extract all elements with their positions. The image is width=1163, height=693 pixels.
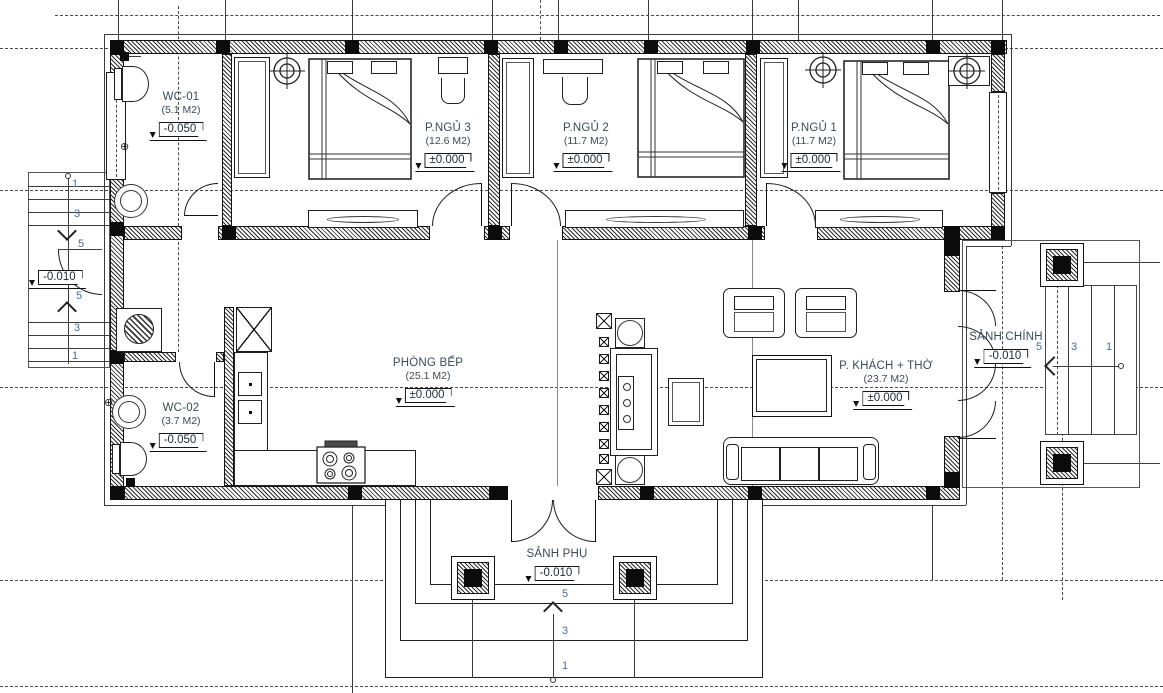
column <box>110 486 124 500</box>
room-area: (11.7 M2) <box>790 135 837 147</box>
room-name: SẢNH PHỤ <box>526 548 587 560</box>
wall-bedroom-south <box>562 226 765 240</box>
wall-partition <box>222 54 232 226</box>
wall-right-upper <box>991 54 1005 92</box>
column <box>991 226 1005 240</box>
line-end-marker <box>1118 363 1124 369</box>
door-swing-arc <box>179 362 214 397</box>
partition-block <box>596 313 612 329</box>
bed <box>308 58 412 180</box>
burner <box>623 415 631 423</box>
pillow <box>862 62 888 75</box>
toilet-bowl <box>122 66 149 102</box>
sink-basin <box>118 401 140 423</box>
column <box>991 40 1005 54</box>
room-label-wc2: WC-02 (3.7 M2) -0.050 <box>159 402 204 448</box>
column <box>748 486 762 500</box>
cabinet <box>238 372 262 396</box>
column <box>110 222 124 236</box>
level-marker: ±0.000 <box>424 153 471 168</box>
cabinet <box>238 400 262 424</box>
window-center-line <box>998 95 999 190</box>
sink-basin <box>120 190 142 212</box>
partition-block <box>599 422 609 432</box>
sofa-arm <box>726 444 739 480</box>
column <box>944 472 960 488</box>
column <box>944 240 960 256</box>
stair-step-number: 1 <box>1106 341 1112 353</box>
door-swing-arc <box>184 183 218 216</box>
line-end-marker <box>550 677 556 683</box>
valve-line <box>129 56 141 57</box>
room-label-bed1: P.NGỦ 1 (11.7 M2) ±0.000 <box>790 122 837 168</box>
chair <box>441 78 465 104</box>
room-area: (11.7 M2) <box>562 135 609 147</box>
stair-tread <box>28 335 110 336</box>
pillow <box>903 62 929 75</box>
stair-tread <box>28 322 110 323</box>
sofa-seat <box>819 447 858 481</box>
pillow <box>371 61 397 74</box>
column <box>746 40 760 54</box>
entry-arrow-stem <box>553 614 554 678</box>
table-burner-strip <box>618 376 634 430</box>
wall-partition <box>488 54 500 226</box>
coffee-table-inner <box>756 359 827 412</box>
grid-line-v <box>352 505 353 693</box>
level-marker: -0.010 <box>535 566 580 581</box>
armchair-seat <box>806 312 846 332</box>
partition-block <box>599 354 609 364</box>
armchair-back <box>806 296 846 310</box>
wardrobe-inner <box>506 62 530 174</box>
room-name: P.NGỦ 1 <box>790 122 837 134</box>
wall-bedroom-south <box>817 226 1005 240</box>
tv-icon <box>840 216 920 223</box>
stair-step-number: 1 <box>72 178 78 190</box>
stove <box>316 440 366 484</box>
entry-arrow-stem <box>1053 366 1119 367</box>
stair-step-number: 3 <box>562 625 568 637</box>
pillow <box>703 61 729 74</box>
t v-icon <box>606 216 706 223</box>
washing-machine-drum <box>124 314 154 344</box>
dining-chair-seat <box>617 457 643 483</box>
valve-icon <box>126 478 135 487</box>
partition-block <box>599 388 609 398</box>
room-area: (25.1 M2) <box>393 370 463 382</box>
wardrobe <box>234 57 270 178</box>
armchair <box>795 288 857 338</box>
sofa-arm <box>863 444 876 480</box>
cabinet-knob <box>249 383 252 386</box>
stair-step-number: 3 <box>74 208 80 220</box>
grid-line-h <box>55 15 1160 16</box>
axis-line-v <box>557 240 558 486</box>
column-leader <box>634 600 635 678</box>
ceiling-fan-icon <box>803 50 843 90</box>
partition-block <box>599 439 609 449</box>
porch-column-core <box>1053 256 1071 274</box>
wardrobe <box>502 58 534 178</box>
column <box>348 486 362 500</box>
porch-column-core <box>626 569 644 587</box>
side-table <box>668 378 704 426</box>
line-end-marker <box>65 173 71 179</box>
sofa <box>723 437 879 485</box>
stair-step-number: 5 <box>76 290 82 302</box>
fridge-space <box>236 307 272 352</box>
wall-wc2 <box>216 352 224 362</box>
level-marker: ±0.000 <box>862 391 909 406</box>
dining-chair <box>615 318 645 348</box>
stair-tread <box>28 199 110 200</box>
stair-step-number: 3 <box>74 322 80 334</box>
bed <box>843 60 950 180</box>
column <box>554 40 568 54</box>
stair-step-number: 1 <box>72 350 78 362</box>
stair-step-number: 1 <box>562 660 568 672</box>
stair-tread <box>28 348 110 349</box>
outline <box>104 34 1011 35</box>
wall-bedroom-south <box>218 226 430 240</box>
room-name: WC-01 <box>159 91 204 103</box>
level-marker: ±0.000 <box>404 388 451 403</box>
door-leaf <box>214 362 215 397</box>
chair <box>562 77 588 105</box>
wardrobe-inner <box>238 61 266 174</box>
column-leader <box>472 600 473 678</box>
door-leaf <box>481 183 482 226</box>
column <box>944 226 960 240</box>
stair-step-number: 3 <box>1071 341 1077 353</box>
wall-wc2 <box>224 307 234 486</box>
desk <box>438 57 468 74</box>
porch-column-core <box>1053 454 1071 472</box>
stair-tread <box>28 212 110 213</box>
level-marker: -0.050 <box>159 433 204 448</box>
partition-block <box>599 405 609 415</box>
room-area: (12.6 M2) <box>424 135 471 147</box>
grid-line-v <box>932 505 933 580</box>
room-label-kitchen: PHÒNG BẾP (25.1 M2) ±0.000 <box>393 357 463 403</box>
coffee-table <box>752 355 832 417</box>
level-marker: ±0.000 <box>562 153 609 168</box>
room-name: WC-02 <box>159 402 204 414</box>
side-table-inner <box>672 382 700 422</box>
dining-chair <box>615 455 645 485</box>
column <box>345 40 359 54</box>
cabinet-knob <box>249 411 252 414</box>
column <box>640 486 654 500</box>
stair-tread <box>28 186 110 187</box>
room-label-side-porch: SẢNH PHỤ -0.010 <box>526 548 587 581</box>
wall-wc2 <box>124 352 176 362</box>
wardrobe-inner <box>764 62 784 174</box>
room-name: SẢNH CHÍNH <box>969 331 1043 343</box>
room-area: (23.7 M2) <box>839 373 933 385</box>
column <box>216 40 230 54</box>
valve-icon <box>120 52 129 61</box>
stair-tread <box>28 361 110 362</box>
grid-line-h <box>0 686 1163 687</box>
left-porch-level: -0.010 <box>38 264 83 285</box>
column <box>748 226 762 240</box>
level-marker: -0.050 <box>159 122 204 137</box>
column <box>488 226 502 240</box>
pillow <box>657 61 683 74</box>
tv-icon <box>327 216 399 223</box>
ceiling-fan-icon <box>947 51 987 91</box>
stair-tread <box>1114 285 1115 435</box>
wardrobe <box>760 58 788 178</box>
dining-chair-seat <box>617 320 643 346</box>
sofa-seat <box>741 447 780 481</box>
room-label-wc1: WC-01 (5.1 M2) -0.050 <box>159 91 204 137</box>
partition-block <box>596 469 612 485</box>
column <box>222 226 236 240</box>
floor-plan-sheet: 1 3 5 5 3 1 -0.010 5 3 1 5 3 1 <box>0 0 1163 693</box>
stair-tread <box>1091 285 1092 435</box>
sofa-seat <box>780 447 819 481</box>
column <box>110 350 124 364</box>
wall-partition <box>745 54 757 226</box>
armchair <box>723 288 785 338</box>
room-label-main-porch: SẢNH CHÍNH -0.010 <box>969 331 1043 364</box>
tv-dresser <box>815 210 943 228</box>
level-marker: -0.010 <box>984 349 1029 364</box>
column <box>926 486 940 500</box>
wall-bedroom-south <box>124 226 182 240</box>
wall-bottom <box>124 486 490 500</box>
bed <box>637 58 745 178</box>
center-line-v <box>178 242 179 352</box>
room-name: P.NGỦ 2 <box>562 122 609 134</box>
room-name: PHÒNG BẾP <box>393 357 463 369</box>
room-label-bed3: P.NGỦ 3 (12.6 M2) ±0.000 <box>424 122 471 168</box>
toilet-tank <box>112 444 120 474</box>
porch-column-core <box>464 569 482 587</box>
faucet-icon: ⊕ <box>120 142 129 153</box>
armchair-seat <box>734 312 774 332</box>
toilet-tank <box>114 68 122 100</box>
outline <box>1011 34 1012 246</box>
door-leaf <box>595 500 596 542</box>
burner <box>623 399 631 407</box>
armchair-back <box>734 296 774 310</box>
toilet-bowl <box>120 442 147 476</box>
room-name: P.NGỦ 3 <box>424 122 471 134</box>
tv-dresser <box>565 210 744 228</box>
partition-block <box>599 337 609 347</box>
room-label-bed2: P.NGỦ 2 (11.7 M2) ±0.000 <box>562 122 609 168</box>
pillow <box>327 61 353 74</box>
room-area: (3.7 M2) <box>159 415 204 427</box>
ceiling-fan-icon <box>267 51 307 91</box>
level-marker: ±0.000 <box>790 153 837 168</box>
window <box>989 92 1007 193</box>
tv-dresser <box>308 210 418 228</box>
burner <box>623 383 631 391</box>
room-area: (5.1 M2) <box>159 104 204 116</box>
column <box>484 40 498 54</box>
room-name: P. KHÁCH + THỜ <box>839 360 933 372</box>
partition-block <box>599 371 609 381</box>
door-leaf <box>958 438 996 439</box>
column <box>490 486 508 500</box>
desk <box>543 59 603 74</box>
column <box>644 40 658 54</box>
column <box>926 40 940 54</box>
stair-step-number: 5 <box>562 588 568 600</box>
stair-tread <box>1068 285 1069 435</box>
room-label-living: P. KHÁCH + THỜ (23.7 M2) ±0.000 <box>839 360 933 406</box>
partition-block <box>599 454 609 464</box>
